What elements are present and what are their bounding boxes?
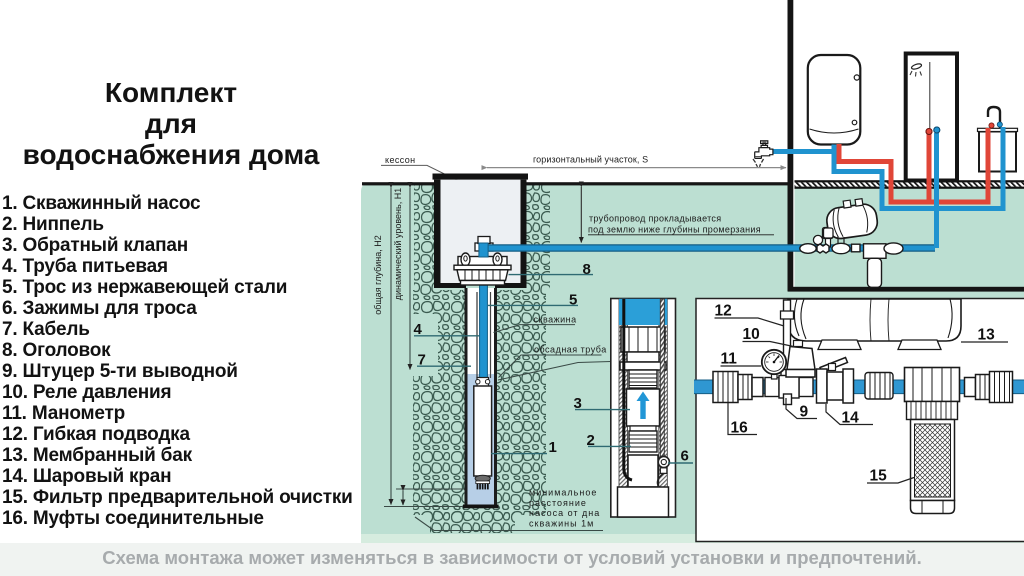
svg-text:7: 7 — [418, 352, 426, 369]
svg-text:под землю ниже глубины промерз: под землю ниже глубины промерзания — [588, 224, 761, 234]
svg-text:11: 11 — [721, 351, 738, 368]
svg-text:12: 12 — [715, 303, 732, 320]
svg-text:4: 4 — [414, 321, 423, 338]
svg-text:2: 2 — [587, 432, 595, 449]
svg-text:скважины 1м: скважины 1м — [529, 518, 594, 528]
svg-text:5: 5 — [569, 291, 577, 308]
svg-text:8: 8 — [583, 261, 591, 278]
svg-text:расстояние: расстояние — [529, 498, 587, 508]
svg-text:минимальное: минимальное — [529, 488, 597, 498]
svg-text:13: 13 — [978, 327, 996, 344]
svg-text:динамический уровень, Н1: динамический уровень, Н1 — [393, 188, 403, 300]
svg-text:скважина: скважина — [534, 315, 577, 325]
svg-text:3: 3 — [574, 395, 582, 412]
svg-text:трубопровод прокладывается: трубопровод прокладывается — [589, 213, 721, 223]
svg-text:15: 15 — [870, 468, 888, 485]
svg-text:кессон: кессон — [385, 155, 416, 165]
svg-text:горизонтальный участок, S: горизонтальный участок, S — [533, 154, 648, 164]
svg-text:6: 6 — [681, 447, 689, 464]
svg-text:общая глубина, Н2: общая глубина, Н2 — [373, 235, 383, 315]
svg-text:1: 1 — [549, 439, 557, 456]
svg-text:обсадная труба: обсадная труба — [534, 345, 607, 355]
svg-text:насоса от дна: насоса от дна — [529, 508, 600, 518]
svg-text:10: 10 — [743, 326, 760, 343]
